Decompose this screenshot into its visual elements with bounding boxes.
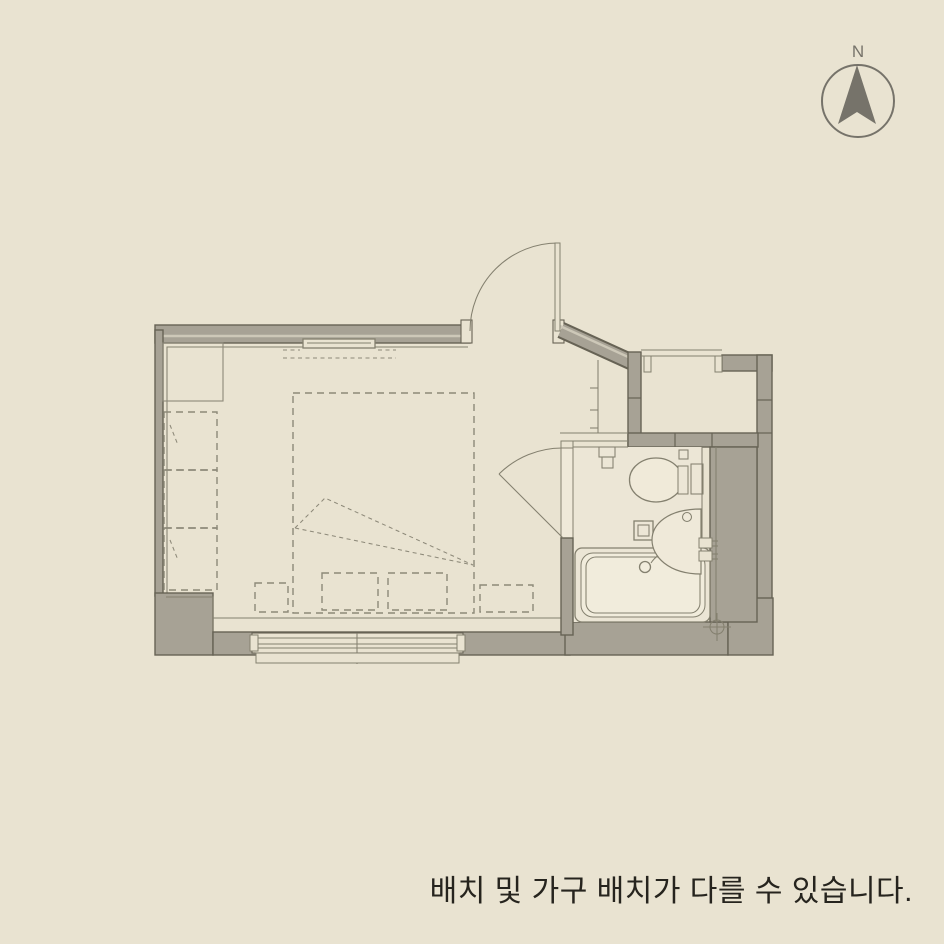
bathroom-door-leaf [499, 474, 563, 538]
entrance-door-leaf [555, 243, 560, 331]
furniture-block [388, 573, 447, 610]
entrance-door [470, 243, 560, 331]
screenshot: N 배치 및 가구 배치가 다를 수 있습니다. [0, 0, 944, 944]
bathroom-doorway [561, 448, 573, 538]
floor-plan: N [0, 0, 944, 944]
bed-fold-mark [295, 498, 473, 565]
wardrobe-units [164, 412, 217, 590]
bathroom [499, 441, 731, 641]
sliding-window [250, 633, 465, 664]
furniture-block [255, 583, 288, 612]
balcony-window-opening [641, 350, 722, 372]
furniture-block [480, 585, 533, 612]
north-compass: N [822, 42, 894, 137]
bathroom-door [499, 448, 563, 538]
service-shaft [710, 447, 757, 622]
north-arrow-icon [838, 65, 876, 124]
closet [163, 343, 223, 401]
entry-shoe-shelf [560, 360, 628, 433]
north-label: N [852, 42, 864, 61]
furniture [163, 339, 533, 613]
window-sill [256, 653, 459, 663]
diagonal-wall [560, 326, 638, 365]
disclaimer-caption: 배치 및 가구 배치가 다를 수 있습니다. [430, 866, 913, 910]
furniture-block [322, 573, 378, 610]
